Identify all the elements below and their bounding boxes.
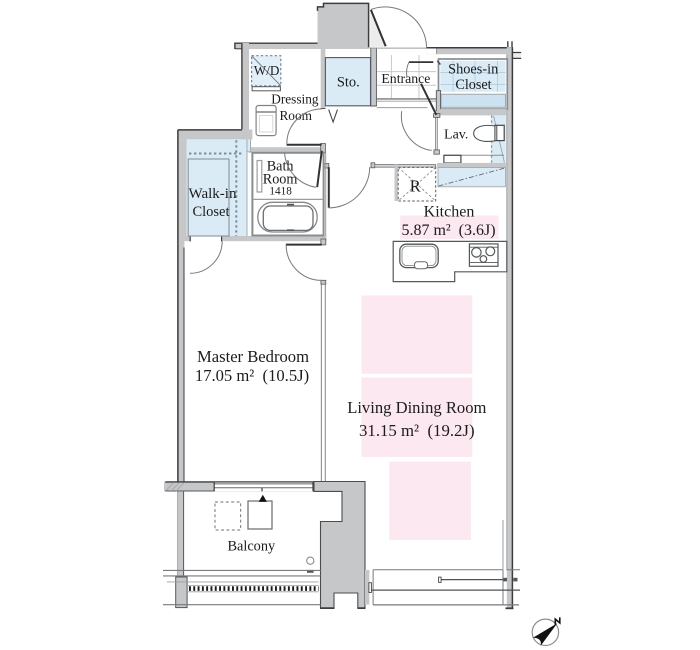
svg-text:Lav.: Lav. [444,128,468,143]
svg-text:Kitchen: Kitchen [424,204,475,221]
svg-text:Living Dining Room: Living Dining Room [347,398,486,417]
svg-text:17.05 m² (10.5J): 17.05 m² (10.5J) [195,366,309,385]
svg-text:Closet: Closet [455,77,491,93]
svg-text:Balcony: Balcony [227,539,275,555]
svg-text:Sto.: Sto. [337,75,360,91]
svg-text:5.87 m² (3.6J): 5.87 m² (3.6J) [401,222,495,239]
svg-text:Entrance: Entrance [381,71,430,86]
svg-text:Master Bedroom: Master Bedroom [197,347,309,366]
svg-text:Walk-in: Walk-in [189,186,237,202]
svg-text:Shoes-in: Shoes-in [448,61,498,77]
svg-text:1418: 1418 [269,186,292,198]
svg-text:Closet: Closet [192,204,229,220]
svg-text:31.15 m² (19.2J): 31.15 m² (19.2J) [359,421,475,440]
svg-text:W/D: W/D [254,63,280,78]
svg-text:R: R [410,177,421,196]
svg-text:Dressing: Dressing [271,91,319,106]
